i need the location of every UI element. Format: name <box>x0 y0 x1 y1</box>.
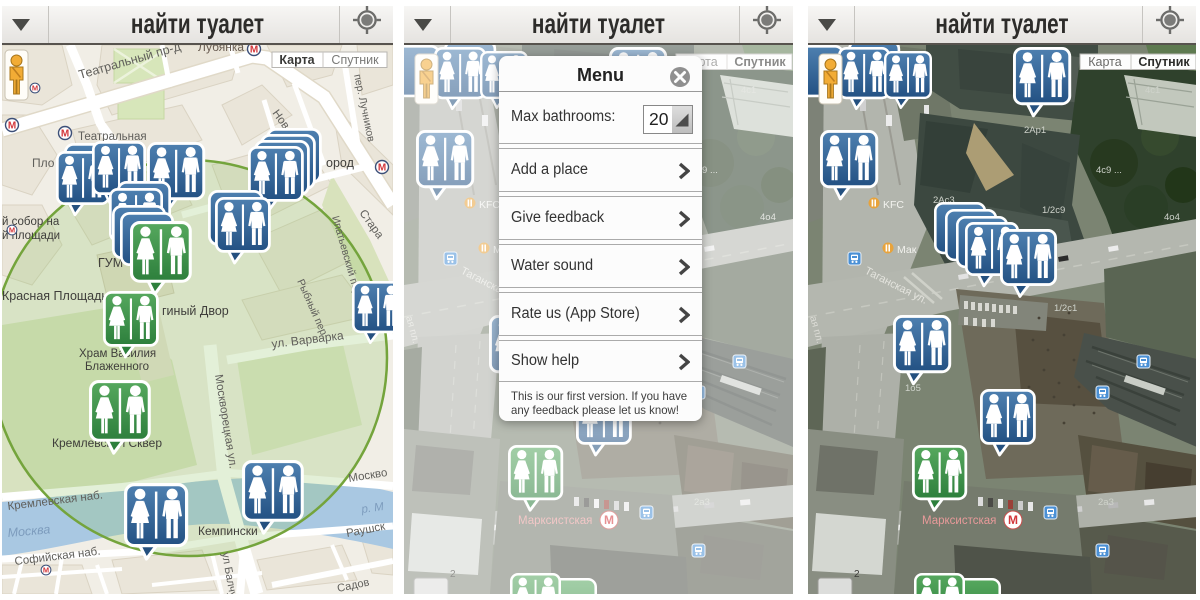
svg-text:гиный Двор: гиный Двор <box>162 304 229 318</box>
svg-text:Карта: Карта <box>279 53 315 67</box>
svg-text:Блаженного: Блаженного <box>85 361 149 373</box>
svg-text:ород: ород <box>326 156 355 170</box>
svg-text:Пло: Пло <box>32 156 55 170</box>
svg-text:Спутник: Спутник <box>331 53 379 67</box>
svg-text:Кемпински: Кемпински <box>198 524 258 538</box>
svg-text:Храм Василия: Храм Василия <box>79 348 156 360</box>
svg-text:Красная Площадь: Красная Площадь <box>2 289 108 303</box>
svg-text:Лубянка: Лубянка <box>198 45 244 54</box>
